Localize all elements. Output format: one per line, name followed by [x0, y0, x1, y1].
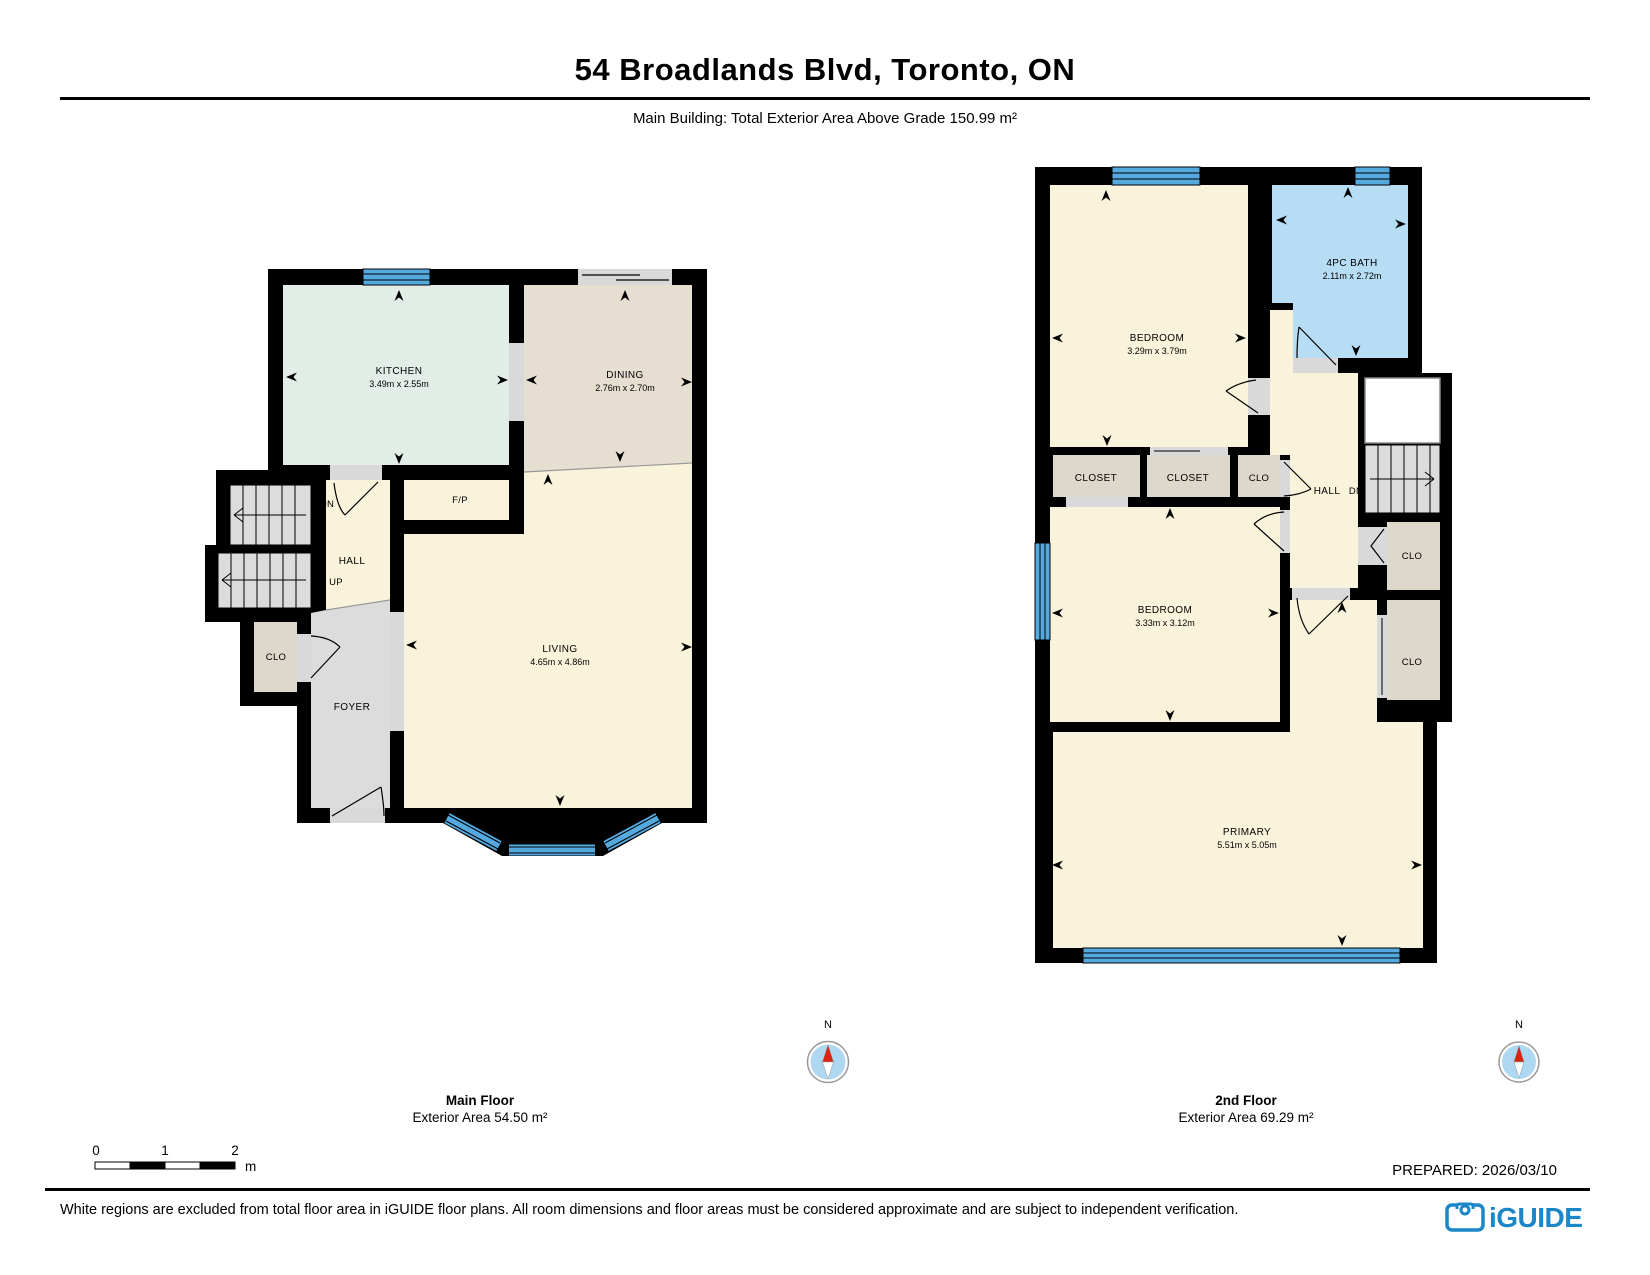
label-dn-main: DN [320, 499, 334, 510]
label-hall-main: HALL [339, 556, 366, 567]
dims-kitchen: 3.49m x 2.55m [369, 379, 429, 389]
scale-unit: m [245, 1159, 256, 1174]
footer-disclaimer: White regions are excluded from total fl… [60, 1202, 1238, 1218]
label-bath: 4PC BATH [1326, 258, 1377, 269]
main-floor-name: Main Floor [310, 1092, 650, 1109]
second-floor-caption: 2nd Floor Exterior Area 69.29 m² [1076, 1092, 1416, 1126]
iguide-logo-text: iGUIDE [1489, 1202, 1582, 1233]
main-floor-area: Exterior Area 54.50 m² [310, 1109, 650, 1126]
second-floor-plan: BEDROOM 3.29m x 3.79m 4PC BATH 2.11m x 2… [1025, 157, 1465, 973]
dims-bath: 2.11m x 2.72m [1323, 271, 1382, 281]
footer-divider [45, 1188, 1590, 1191]
label-clo-lower: CLO [1402, 657, 1422, 668]
second-floor-name: 2nd Floor [1076, 1092, 1416, 1109]
label-dn-2f: DN [1349, 486, 1363, 497]
scale-bar-segments [95, 1162, 235, 1169]
dims-dining: 2.76m x 2.70m [595, 383, 655, 393]
dims-living: 4.65m x 4.86m [530, 657, 590, 667]
compass-n-label-second: N [1515, 1019, 1523, 1031]
iguide-logo: iGUIDE [1443, 1197, 1593, 1238]
page-title: 54 Broadlands Blvd, Toronto, ON [0, 52, 1650, 88]
compass-n-label-main: N [824, 1019, 832, 1031]
compass-main: N [800, 1015, 856, 1093]
label-living: LIVING [542, 644, 577, 655]
scale-bar: 0 1 2 m [85, 1138, 275, 1180]
label-hall-2f: HALL [1314, 486, 1341, 497]
label-kitchen: KITCHEN [376, 366, 423, 377]
second-floor-area: Exterior Area 69.29 m² [1076, 1109, 1416, 1126]
scale-tick-1: 1 [161, 1143, 169, 1158]
label-up-main: UP [329, 577, 343, 588]
title-divider [60, 97, 1590, 100]
label-primary: PRIMARY [1223, 827, 1271, 838]
stairwell-void [1365, 378, 1440, 443]
label-clo-upper: CLO [1402, 551, 1422, 562]
label-clo3: CLO [1249, 473, 1269, 484]
dims-primary: 5.51m x 5.05m [1217, 840, 1277, 850]
room-hall-main [326, 480, 390, 610]
compass-second: N [1491, 1015, 1547, 1093]
floorplan-page: 54 Broadlands Blvd, Toronto, ON Main Bui… [0, 0, 1650, 1275]
page-subtitle: Main Building: Total Exterior Area Above… [0, 110, 1650, 127]
label-foyer: FOYER [334, 702, 370, 713]
dims-bedroom1: 3.29m x 3.79m [1127, 346, 1187, 356]
room-bedroom1 [1050, 185, 1248, 447]
scale-tick-2: 2 [231, 1143, 239, 1158]
dims-bedroom2: 3.33m x 3.12m [1135, 618, 1195, 628]
label-clo-main: CLO [266, 652, 286, 663]
prepared-date: PREPARED: 2026/03/10 [1392, 1162, 1557, 1179]
label-bedroom1: BEDROOM [1130, 333, 1184, 344]
main-floor-plan: KITCHEN 3.49m x 2.55m DINING 2.76m x 2.7… [195, 255, 720, 865]
scale-tick-0: 0 [92, 1143, 100, 1158]
main-floor-caption: Main Floor Exterior Area 54.50 m² [310, 1092, 650, 1126]
label-bedroom2: BEDROOM [1138, 605, 1192, 616]
label-closet2: CLOSET [1167, 473, 1209, 484]
label-fireplace: F/P [452, 495, 468, 506]
stairs-2f [1365, 445, 1440, 513]
label-closet1: CLOSET [1075, 473, 1117, 484]
iguide-logo-icon [1447, 1202, 1483, 1230]
room-clo-lower [1387, 600, 1440, 700]
label-dining: DINING [606, 370, 643, 381]
